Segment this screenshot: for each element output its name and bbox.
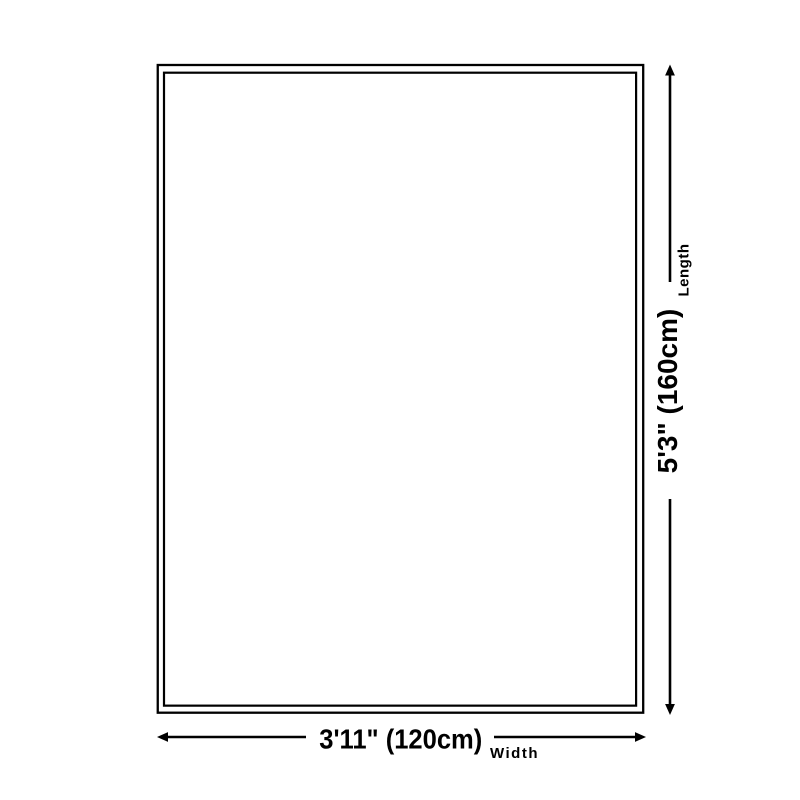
svg-text:Length: Length <box>676 244 693 297</box>
svg-text:3'11" (120cm): 3'11" (120cm) <box>319 723 482 754</box>
svg-text:5'3" (160cm): 5'3" (160cm) <box>652 309 683 474</box>
svg-text:Width: Width <box>490 745 538 762</box>
